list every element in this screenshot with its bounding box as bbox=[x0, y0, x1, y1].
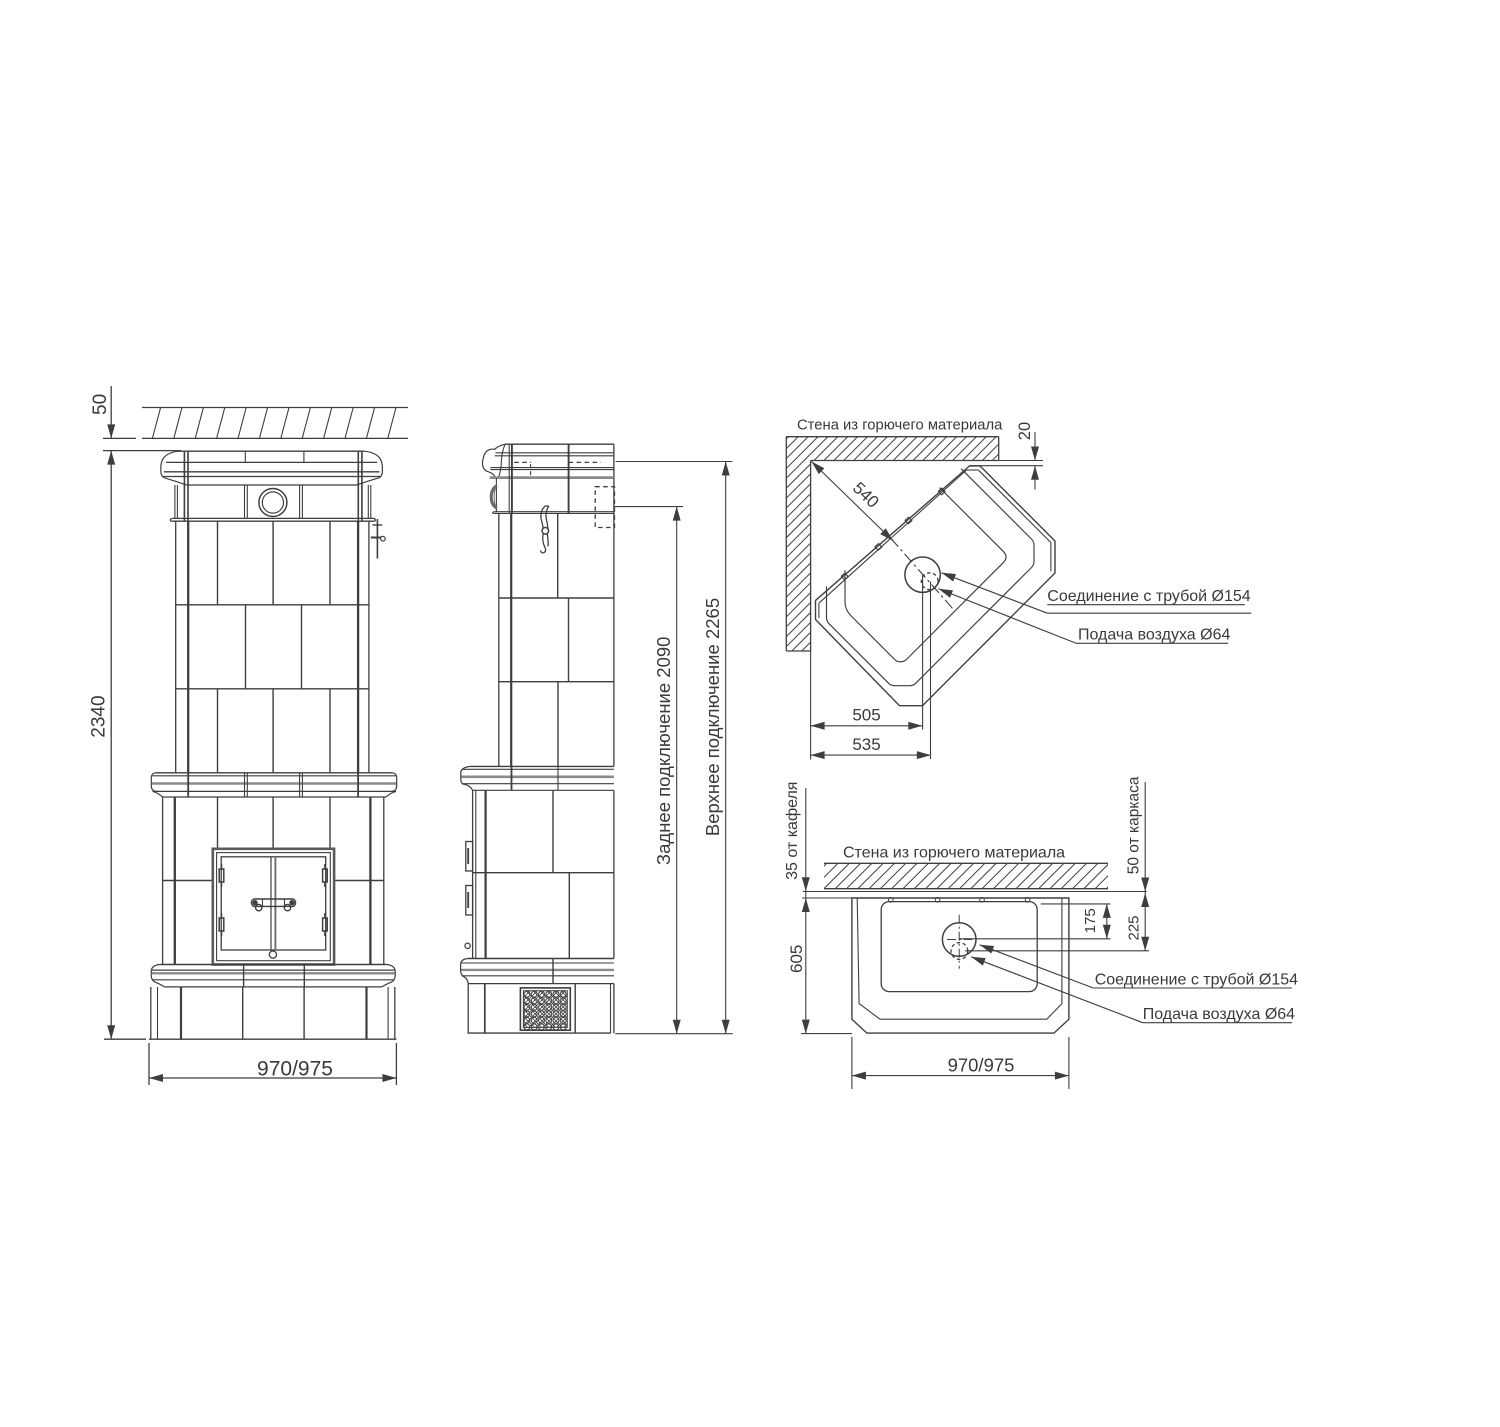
svg-text:970/975: 970/975 bbox=[948, 1055, 1015, 1076]
svg-text:35 от кафеля: 35 от кафеля bbox=[784, 782, 801, 880]
svg-text:20: 20 bbox=[1016, 422, 1034, 440]
svg-text:Соединение с трубой Ø154: Соединение с трубой Ø154 bbox=[1095, 971, 1298, 988]
svg-text:Стена из горючего материала: Стена из горючего материала bbox=[797, 418, 1003, 434]
svg-text:Подача воздуха Ø64: Подача воздуха Ø64 bbox=[1143, 1006, 1295, 1023]
svg-text:540: 540 bbox=[849, 478, 883, 511]
svg-text:505: 505 bbox=[852, 706, 880, 725]
svg-text:605: 605 bbox=[787, 945, 806, 973]
svg-text:Подача воздуха Ø64: Подача воздуха Ø64 bbox=[1078, 627, 1230, 644]
svg-text:225: 225 bbox=[1126, 915, 1143, 940]
svg-text:Стена из горючего материала: Стена из горючего материала bbox=[843, 845, 1065, 862]
svg-text:2340: 2340 bbox=[88, 695, 109, 737]
svg-text:50 от каркаса: 50 от каркаса bbox=[1126, 776, 1143, 874]
svg-text:Верхнее подключение 2265: Верхнее подключение 2265 bbox=[702, 598, 723, 836]
svg-text:Заднее подключение 2090: Заднее подключение 2090 bbox=[653, 637, 674, 866]
svg-text:Соединение с трубой Ø154: Соединение с трубой Ø154 bbox=[1047, 588, 1250, 605]
svg-text:970/975: 970/975 bbox=[257, 1058, 333, 1081]
svg-text:175: 175 bbox=[1082, 908, 1099, 933]
svg-text:535: 535 bbox=[852, 735, 880, 754]
svg-text:50: 50 bbox=[90, 394, 111, 415]
